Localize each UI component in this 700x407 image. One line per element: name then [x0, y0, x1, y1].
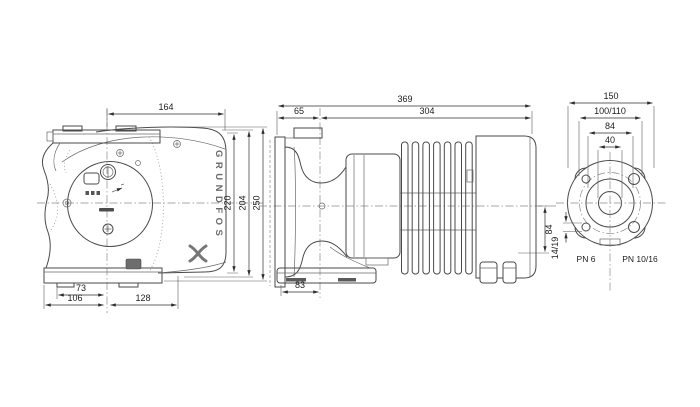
grundfos-cross-logo-icon — [190, 246, 206, 261]
flange-view: 150 100/110 84 40 14/19 PN 6 PN 10/16 — [550, 91, 666, 292]
dim-label-65: 65 — [294, 106, 304, 116]
dim-label-369: 369 — [397, 94, 412, 104]
dim-label-84-flange: 84 — [605, 121, 615, 131]
screw-icon-bottom — [103, 224, 113, 234]
front-dimensions: 164 220 204 250 73 106 128 — [44, 102, 267, 309]
dim-label-73: 73 — [76, 283, 86, 293]
dim-label-14-19: 14/19 — [550, 237, 560, 260]
cable-gland-left — [480, 262, 497, 283]
dim-label-150: 150 — [603, 91, 618, 101]
brand-label: GRUNDFOS — [213, 150, 224, 240]
vent-screw-icon — [101, 165, 116, 180]
front-pump-head — [63, 141, 181, 270]
side-view: 369 65 304 83 84 — [259, 94, 556, 298]
dim-label-83: 83 — [295, 280, 305, 290]
display-window — [84, 173, 99, 184]
side-pump-head-cylinder — [346, 154, 400, 265]
small-screw-icon — [136, 161, 141, 166]
side-end-cap — [476, 136, 536, 283]
pump-dimensional-drawing: GRUNDFOS 164 220 204 250 73 106 128 — [0, 0, 700, 407]
side-motor-fins — [400, 142, 476, 274]
dim-label-106: 106 — [67, 293, 82, 303]
led-indicators — [86, 191, 101, 195]
technical-drawing-page: GRUNDFOS 164 220 204 250 73 106 128 — [0, 0, 700, 407]
pn6-label: PN 6 — [577, 254, 596, 264]
grundfos-mini-logo — [99, 208, 114, 212]
front-view: GRUNDFOS 164 220 204 250 73 106 128 — [37, 102, 267, 313]
cable-gland-right — [503, 262, 516, 283]
dim-label-304: 304 — [419, 106, 434, 116]
front-volute-outline — [42, 143, 70, 268]
front-top-flange — [47, 126, 160, 143]
dim-label-204: 204 — [238, 195, 248, 210]
dim-label-128: 128 — [135, 293, 150, 303]
screw-icon-top — [117, 150, 124, 157]
pn10-16-label: PN 10/16 — [622, 254, 658, 264]
dim-label-220: 220 — [223, 195, 233, 210]
screw-icon-upper-right — [174, 141, 181, 148]
bottom-connector — [126, 259, 141, 269]
arrow-marking-icon — [112, 184, 124, 192]
dim-label-84-side: 84 — [544, 224, 554, 234]
dim-label-164: 164 — [158, 102, 173, 112]
dim-label-40: 40 — [605, 135, 615, 145]
dim-label-100-110: 100/110 — [594, 106, 626, 116]
dim-label-250: 250 — [252, 195, 262, 210]
